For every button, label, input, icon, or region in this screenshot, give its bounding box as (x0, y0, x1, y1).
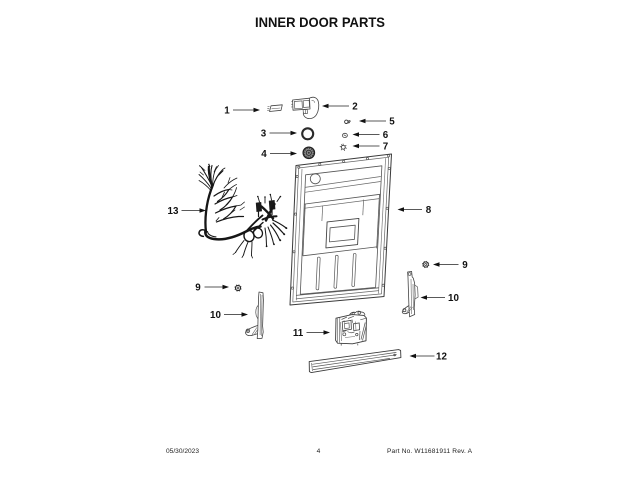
svg-text:6: 6 (383, 130, 389, 141)
svg-text:12: 12 (436, 351, 447, 362)
svg-text:INNER DOOR PARTS: INNER DOOR PARTS (255, 14, 385, 30)
svg-text:10: 10 (448, 293, 459, 304)
svg-text:2: 2 (352, 101, 358, 112)
svg-text:4: 4 (317, 448, 321, 455)
svg-text:05/30/2023: 05/30/2023 (166, 448, 199, 455)
svg-text:9: 9 (195, 282, 201, 293)
svg-text:8: 8 (426, 205, 432, 216)
svg-text:10: 10 (210, 310, 221, 321)
svg-text:9: 9 (462, 260, 468, 271)
svg-text:3: 3 (261, 128, 267, 139)
svg-text:1: 1 (224, 105, 230, 116)
svg-text:11: 11 (293, 328, 304, 339)
svg-text:4: 4 (261, 149, 267, 160)
svg-text:Part No. W11681911 Rev. A: Part No. W11681911 Rev. A (387, 448, 473, 455)
svg-text:13: 13 (168, 206, 179, 217)
svg-text:7: 7 (383, 141, 389, 152)
svg-text:5: 5 (389, 116, 395, 127)
